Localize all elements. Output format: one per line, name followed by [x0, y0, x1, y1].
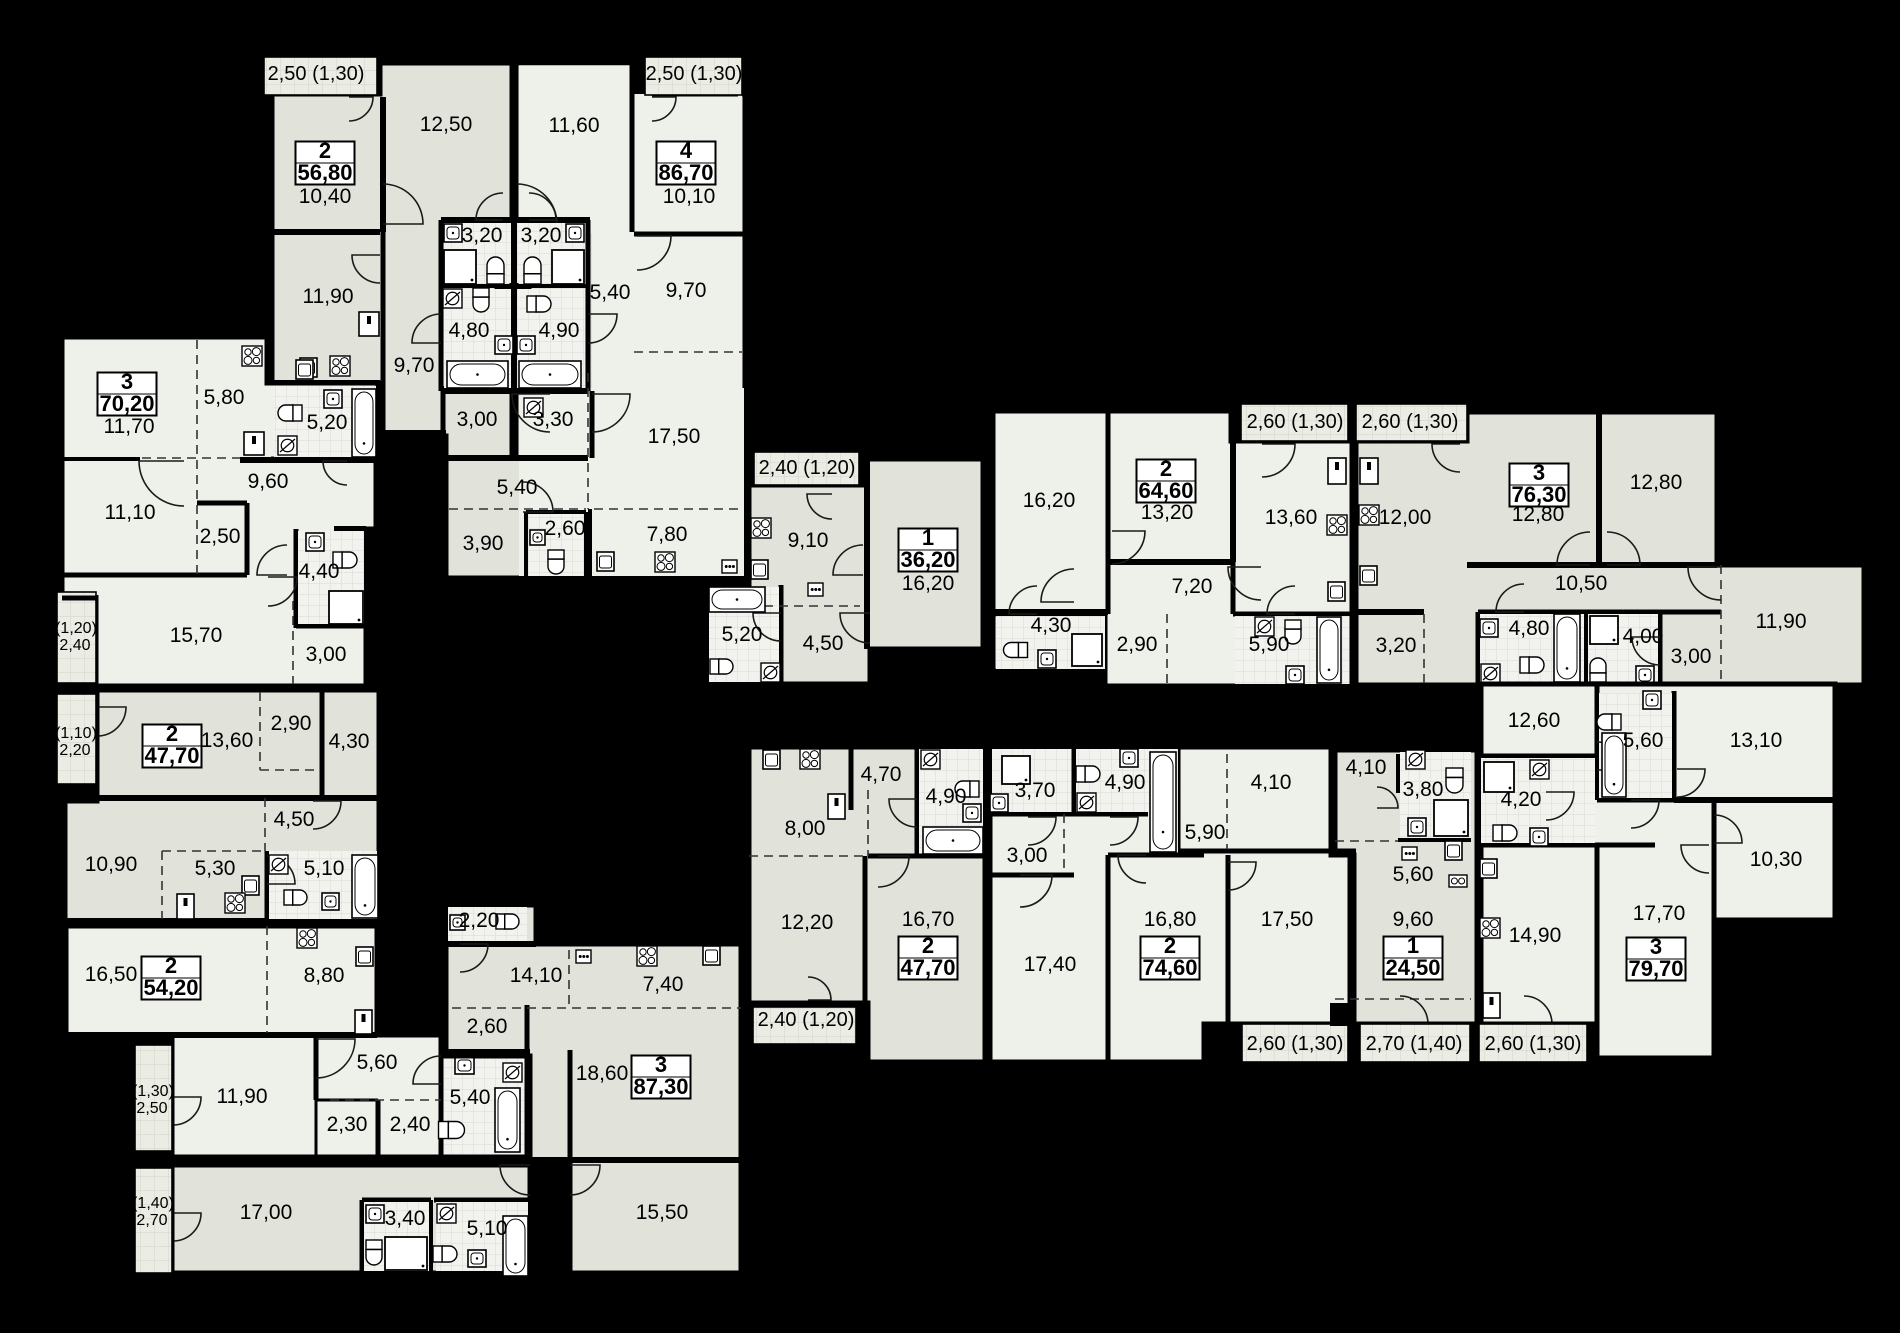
svg-text:47,70: 47,70: [900, 955, 955, 980]
svg-text:5,40: 5,40: [450, 1086, 491, 1109]
svg-text:17,70: 17,70: [1633, 902, 1686, 925]
svg-text:15,50: 15,50: [636, 1201, 689, 1224]
svg-text:11,70: 11,70: [104, 415, 155, 438]
svg-text:2,90: 2,90: [1117, 633, 1158, 656]
svg-text:10,90: 10,90: [85, 853, 138, 876]
svg-text:12,60: 12,60: [1508, 709, 1561, 732]
svg-text:5,30: 5,30: [195, 857, 236, 880]
svg-text:5,10: 5,10: [467, 1217, 508, 1240]
svg-text:8,80: 8,80: [304, 964, 345, 987]
svg-text:54,20: 54,20: [143, 975, 198, 1000]
svg-text:5,40: 5,40: [497, 476, 538, 499]
svg-text:12,50: 12,50: [420, 113, 473, 136]
svg-text:10,50: 10,50: [1555, 572, 1608, 595]
svg-text:11,60: 11,60: [549, 114, 600, 137]
svg-text:87,30: 87,30: [633, 1074, 688, 1099]
svg-text:2,40: 2,40: [59, 637, 90, 654]
svg-text:9,60: 9,60: [248, 470, 289, 493]
svg-text:15,70: 15,70: [170, 624, 223, 647]
svg-text:2,60 (1,30): 2,60 (1,30): [1485, 1033, 1582, 1055]
svg-text:17,40: 17,40: [1024, 953, 1077, 976]
svg-text:14,90: 14,90: [1509, 924, 1562, 947]
svg-text:12,80: 12,80: [1630, 471, 1683, 494]
svg-text:2,70: 2,70: [136, 1212, 167, 1229]
svg-text:3,20: 3,20: [521, 224, 562, 247]
svg-text:2,50 (1,30): 2,50 (1,30): [268, 63, 365, 85]
svg-text:3,80: 3,80: [1403, 778, 1444, 801]
svg-text:17,00: 17,00: [240, 1201, 293, 1224]
svg-text:5,90: 5,90: [1249, 633, 1290, 656]
svg-text:2,60 (1,30): 2,60 (1,30): [1247, 411, 1344, 433]
svg-text:9,70: 9,70: [394, 354, 435, 377]
svg-text:79,70: 79,70: [1628, 956, 1683, 981]
svg-text:2,30: 2,30: [327, 1113, 368, 1136]
svg-text:2,60: 2,60: [467, 1015, 508, 1038]
svg-text:13,20: 13,20: [1141, 501, 1194, 524]
svg-text:8,00: 8,00: [785, 817, 826, 840]
svg-text:2,50: 2,50: [136, 1100, 167, 1117]
svg-text:4,80: 4,80: [449, 319, 490, 342]
svg-text:11,90: 11,90: [1756, 610, 1807, 633]
svg-text:7,80: 7,80: [647, 523, 688, 546]
svg-text:3,40: 3,40: [385, 1207, 426, 1230]
svg-text:86,70: 86,70: [658, 160, 713, 185]
svg-text:64,60: 64,60: [1138, 478, 1193, 503]
svg-text:36,20: 36,20: [900, 547, 955, 572]
svg-text:4,10: 4,10: [1346, 756, 1387, 779]
svg-text:3,00: 3,00: [1671, 645, 1712, 668]
svg-text:17,50: 17,50: [648, 425, 701, 448]
svg-text:12,20: 12,20: [781, 911, 834, 934]
svg-text:47,70: 47,70: [144, 743, 199, 768]
svg-text:56,80: 56,80: [297, 160, 352, 185]
svg-text:17,50: 17,50: [1261, 908, 1314, 931]
svg-text:3,00: 3,00: [306, 643, 347, 666]
svg-text:9,10: 9,10: [788, 529, 829, 552]
svg-text:16,70: 16,70: [902, 908, 955, 931]
svg-text:5,60: 5,60: [357, 1051, 398, 1074]
svg-text:7,40: 7,40: [643, 973, 684, 996]
svg-text:(1,20): (1,20): [55, 620, 97, 637]
svg-text:7,20: 7,20: [1172, 575, 1213, 598]
svg-text:5,10: 5,10: [304, 857, 345, 880]
svg-text:4,40: 4,40: [299, 560, 340, 583]
svg-text:14,10: 14,10: [510, 964, 563, 987]
svg-text:3,70: 3,70: [1015, 779, 1056, 802]
svg-text:4,90: 4,90: [926, 785, 967, 808]
svg-text:11,90: 11,90: [303, 285, 354, 308]
svg-text:2,50 (1,30): 2,50 (1,30): [646, 63, 743, 85]
svg-text:2,90: 2,90: [271, 712, 312, 735]
svg-text:(1,30): (1,30): [132, 1083, 174, 1100]
svg-text:13,60: 13,60: [1265, 506, 1318, 529]
svg-text:2,20: 2,20: [59, 742, 90, 759]
svg-text:24,50: 24,50: [1385, 955, 1440, 980]
svg-text:10,10: 10,10: [663, 185, 716, 208]
svg-text:5,40: 5,40: [590, 281, 631, 304]
svg-text:70,20: 70,20: [99, 391, 154, 416]
svg-text:2,40: 2,40: [390, 1113, 431, 1136]
svg-text:10,30: 10,30: [1750, 848, 1803, 871]
svg-text:5,90: 5,90: [1185, 821, 1226, 844]
svg-text:4,00: 4,00: [1623, 625, 1664, 648]
svg-text:11,10: 11,10: [105, 501, 156, 524]
svg-text:5,60: 5,60: [1623, 729, 1664, 752]
svg-text:16,20: 16,20: [1023, 489, 1076, 512]
svg-text:2,40 (1,20): 2,40 (1,20): [759, 457, 856, 479]
svg-text:16,20: 16,20: [902, 572, 955, 595]
svg-text:3,90: 3,90: [463, 532, 504, 555]
svg-text:2,40 (1,20): 2,40 (1,20): [758, 1009, 855, 1031]
svg-text:(1,40): (1,40): [132, 1195, 174, 1212]
svg-text:4,10: 4,10: [1251, 771, 1292, 794]
svg-text:2,50: 2,50: [200, 525, 241, 548]
svg-text:74,60: 74,60: [1142, 955, 1197, 980]
svg-text:16,80: 16,80: [1144, 908, 1197, 931]
svg-text:5,20: 5,20: [722, 623, 763, 646]
svg-text:16,50: 16,50: [85, 963, 138, 986]
svg-text:3,00: 3,00: [1007, 844, 1048, 867]
svg-text:4,70: 4,70: [861, 763, 902, 786]
svg-text:2,70 (1,40): 2,70 (1,40): [1366, 1033, 1463, 1055]
svg-text:2,60 (1,30): 2,60 (1,30): [1362, 411, 1459, 433]
svg-text:2,20: 2,20: [459, 909, 500, 932]
svg-text:4,90: 4,90: [539, 319, 580, 342]
svg-text:2,60 (1,30): 2,60 (1,30): [1247, 1033, 1344, 1055]
svg-text:12,00: 12,00: [1379, 506, 1432, 529]
svg-text:4,80: 4,80: [1509, 617, 1550, 640]
svg-text:5,20: 5,20: [307, 411, 348, 434]
svg-text:13,60: 13,60: [201, 729, 254, 752]
svg-text:9,60: 9,60: [1393, 908, 1434, 931]
svg-text:5,80: 5,80: [204, 386, 245, 409]
svg-text:4,90: 4,90: [1105, 771, 1146, 794]
svg-text:5,60: 5,60: [1393, 863, 1434, 886]
svg-text:3,20: 3,20: [1376, 634, 1417, 657]
svg-text:9,70: 9,70: [666, 279, 707, 302]
svg-text:4,20: 4,20: [1501, 788, 1542, 811]
svg-text:3,20: 3,20: [462, 224, 503, 247]
svg-text:11,90: 11,90: [217, 1085, 268, 1108]
svg-text:76,30: 76,30: [1511, 482, 1566, 507]
svg-text:13,10: 13,10: [1730, 729, 1783, 752]
svg-text:10,40: 10,40: [299, 185, 352, 208]
svg-text:2,60: 2,60: [545, 517, 586, 540]
svg-text:4,30: 4,30: [329, 730, 370, 753]
svg-text:4,30: 4,30: [1031, 614, 1072, 637]
svg-text:4,50: 4,50: [274, 808, 315, 831]
svg-text:3,30: 3,30: [533, 408, 574, 431]
svg-text:18,60: 18,60: [576, 1062, 629, 1085]
svg-text:3,00: 3,00: [457, 408, 498, 431]
svg-text:(1,10): (1,10): [55, 725, 97, 742]
svg-text:4,50: 4,50: [803, 632, 844, 655]
